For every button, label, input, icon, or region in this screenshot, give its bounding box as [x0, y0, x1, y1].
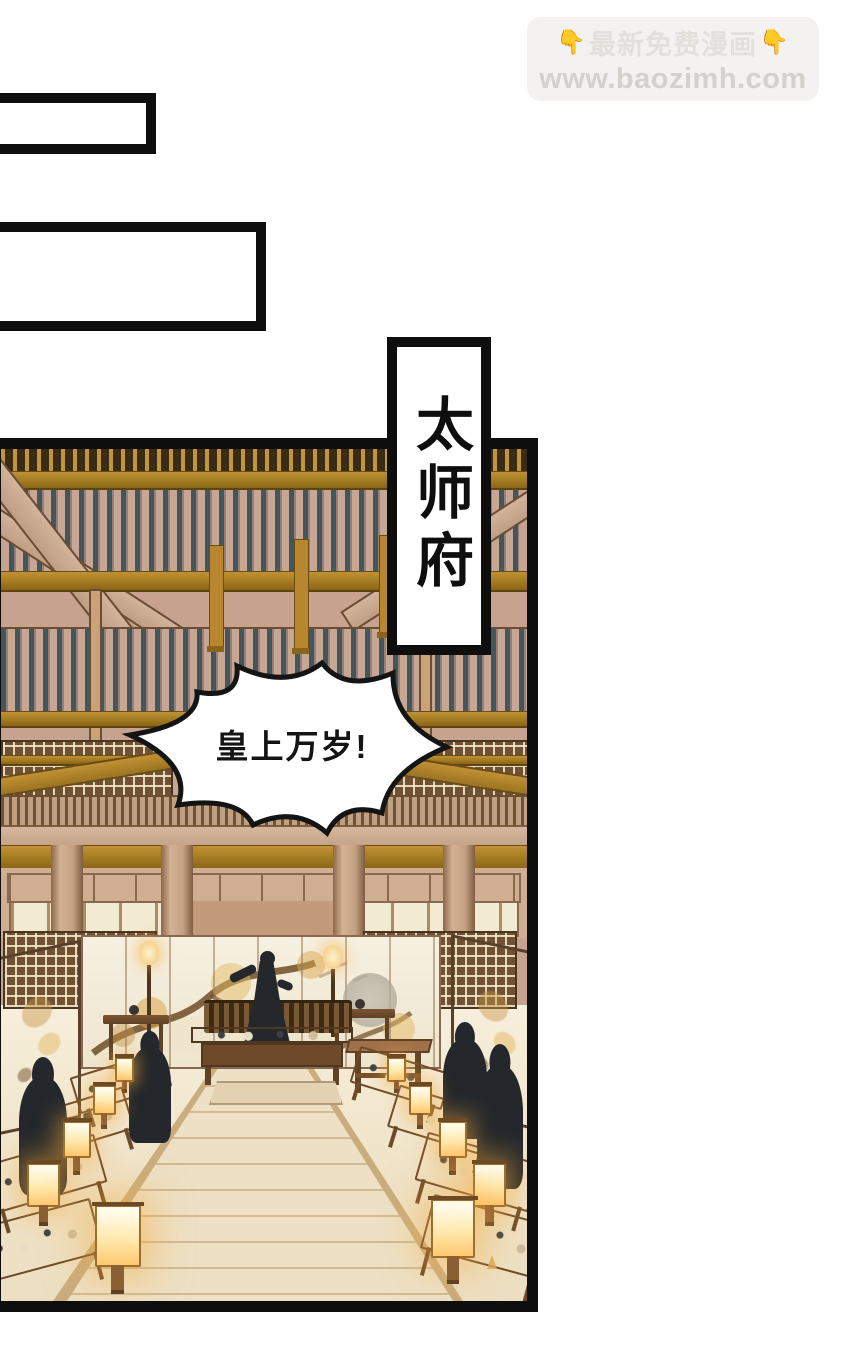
altar-table [103, 1015, 169, 1024]
location-plaque: 太师府 [387, 337, 491, 655]
watermark-title-row: 👇 最新免费漫画 👇 [556, 23, 790, 62]
floor-lantern [409, 1085, 432, 1115]
main-table [191, 1027, 353, 1085]
watermark-title: 最新免费漫画 [589, 23, 757, 62]
table-front [201, 1043, 343, 1067]
floor-lantern [439, 1121, 467, 1158]
floor-lantern [63, 1121, 91, 1158]
hanging-post [209, 545, 224, 647]
floor-lantern [431, 1199, 475, 1258]
floor-lantern [115, 1057, 134, 1082]
kneeling-figure [129, 1047, 171, 1143]
speech-bubble-text: 皇上万岁! [216, 728, 369, 765]
caption-box-middle [0, 222, 266, 331]
watermark-url: www.baozimh.com [539, 63, 806, 96]
floor-mark [487, 1255, 497, 1269]
wall-center [173, 901, 353, 938]
speech-bubble: 皇上万岁! [120, 650, 460, 850]
hanging-post [294, 539, 309, 649]
floor-lantern [27, 1163, 60, 1207]
floor-lantern [387, 1057, 406, 1082]
dais-platform [209, 1081, 343, 1105]
caption-box-top [0, 93, 156, 154]
floor-lantern [95, 1205, 141, 1267]
table-top-with-dishes [191, 1027, 353, 1043]
point-down-icon: 👇 [556, 28, 587, 57]
floor-lantern [473, 1163, 506, 1207]
point-down-icon: 👇 [759, 28, 790, 57]
floor-lantern [93, 1085, 116, 1115]
site-watermark: 👇 最新免费漫画 👇 www.baozimh.com [527, 17, 819, 101]
comic-page: 👇 最新免费漫画 👇 www.baozimh.com [0, 0, 850, 1366]
bent-arm [276, 978, 294, 991]
location-plaque-text: 太师府 [410, 394, 468, 598]
